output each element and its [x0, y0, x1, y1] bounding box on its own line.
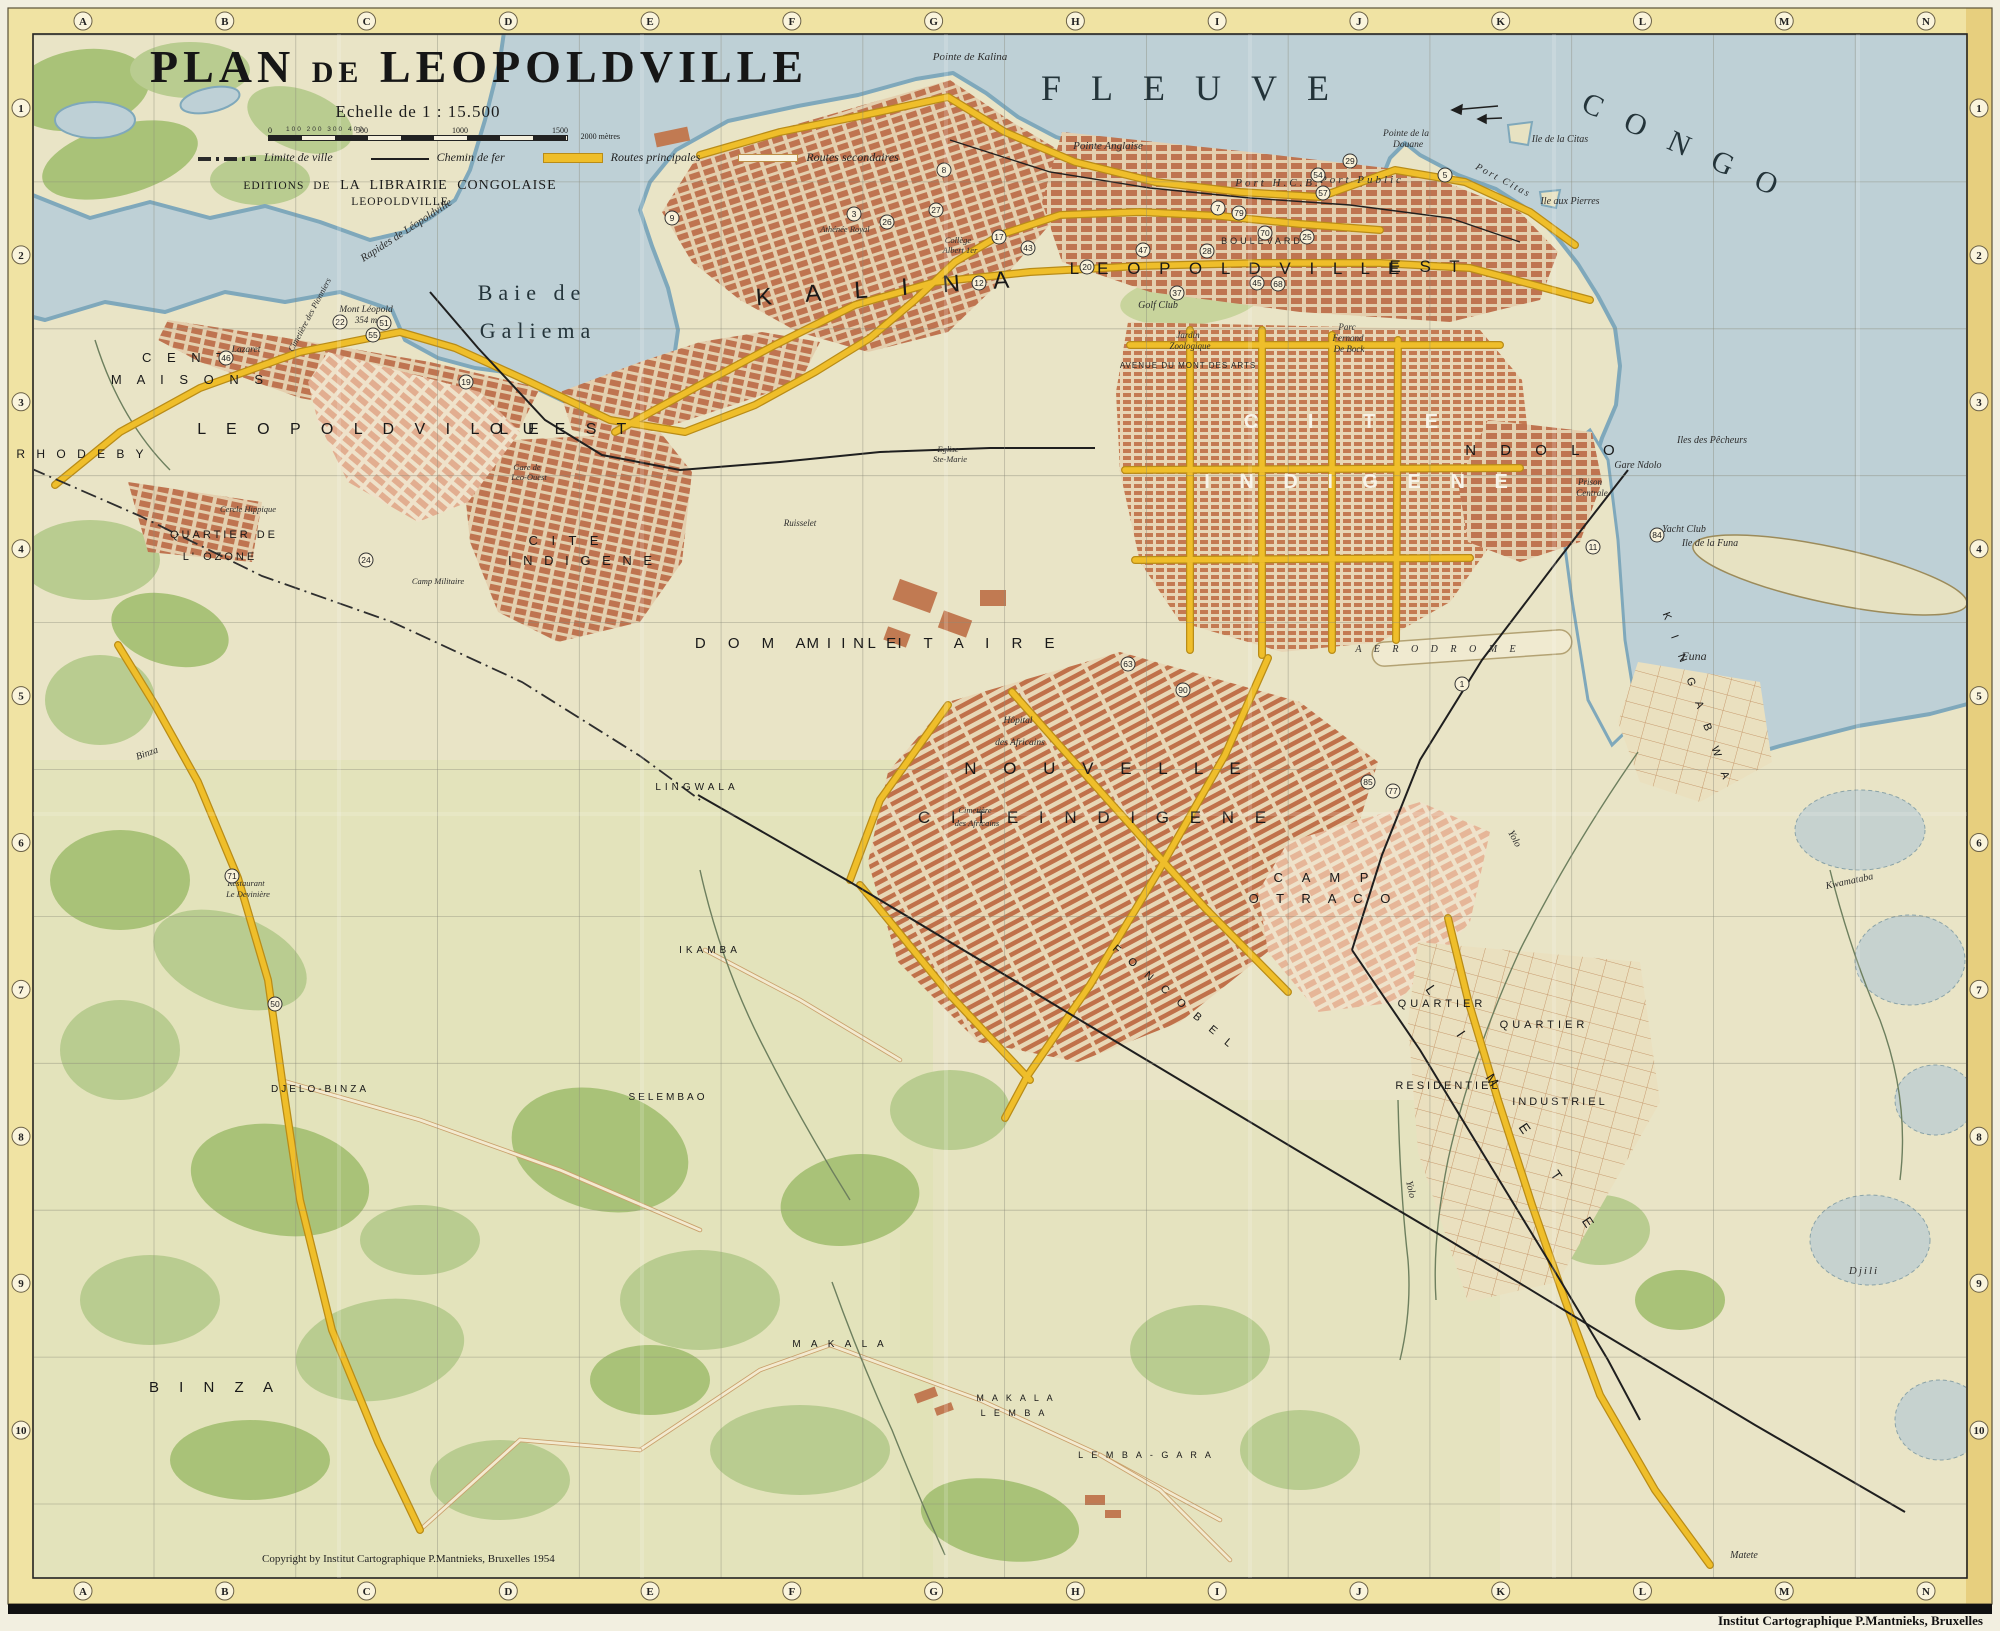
- grid-letter: M: [1779, 16, 1790, 28]
- poi-number: 20: [1082, 262, 1092, 272]
- map-label: Leo-Ouest: [510, 472, 547, 482]
- poi-number: 90: [1178, 685, 1188, 695]
- poi-number: 12: [974, 278, 984, 288]
- grid-number: 9: [18, 1278, 24, 1290]
- bottom-black-bar: [8, 1604, 1992, 1614]
- poi-number: 24: [361, 555, 371, 565]
- map-label: Douane: [1392, 140, 1423, 150]
- map-label: Fernand: [1332, 333, 1364, 343]
- map-label: Hôpital: [1002, 716, 1032, 726]
- grid-letter: G: [929, 1586, 938, 1598]
- grid-letter: J: [1356, 16, 1362, 28]
- poi-number: 68: [1273, 279, 1283, 289]
- island-citas: [1508, 122, 1532, 145]
- map-label: L E O P O L D V I L L E: [1070, 259, 1407, 278]
- grid-letter: N: [1922, 16, 1930, 28]
- map-label: IKAMBA: [679, 945, 741, 956]
- map-label: DJELO-BINZA: [271, 1084, 369, 1095]
- map-label: M A I S O N S: [111, 372, 269, 387]
- grid-letter: K: [1496, 16, 1505, 28]
- grid-number: 2: [18, 250, 24, 262]
- poi-number: 43: [1023, 243, 1033, 253]
- map-page: FLEUVECONGOBaie deGaliemaPointe de Kalin…: [0, 0, 2000, 1631]
- grid-number: 4: [18, 544, 24, 556]
- railway-swatch: [371, 158, 429, 161]
- poi-number: 77: [1388, 786, 1398, 796]
- grid-number: 5: [1976, 691, 1982, 703]
- map-label: Galiema: [480, 318, 597, 343]
- scale-tick: 1000: [452, 126, 468, 135]
- title-part: DE: [312, 56, 364, 89]
- map-label: Gare Ndolo: [1614, 460, 1661, 471]
- map-label: Yacht Club: [1662, 524, 1706, 535]
- poi-number: 3: [852, 209, 857, 219]
- map-label: Djili: [1848, 1265, 1879, 1277]
- map-label: Ruisselet: [783, 518, 817, 528]
- map-label: QUARTIER: [1500, 1019, 1589, 1031]
- map-label: LINGWALA: [655, 782, 738, 793]
- scale-tick: 0: [268, 126, 272, 135]
- grid-number: 7: [1976, 984, 1982, 996]
- legend-label: Chemin de fer: [437, 150, 505, 165]
- poi-number: 29: [1345, 156, 1355, 166]
- leopoldville-map: FLEUVECONGOBaie deGaliemaPointe de Kalin…: [0, 0, 2000, 1631]
- map-label: Pointe de Kalina: [932, 51, 1008, 63]
- map-label: Collège: [945, 235, 972, 245]
- grid-letter: C: [363, 1586, 371, 1598]
- map-label: Iles des Pêcheurs: [1676, 435, 1747, 446]
- legend-label: Routes secondaires: [806, 150, 899, 165]
- grid-letter: B: [221, 1586, 229, 1598]
- grid-letter: E: [646, 1586, 653, 1598]
- legend-label: Limite de ville: [264, 150, 333, 165]
- grid-letter: E: [646, 16, 653, 28]
- map-label: des Africains: [995, 737, 1045, 748]
- map-label: Gare de: [513, 462, 541, 472]
- poi-number: 45: [1252, 278, 1262, 288]
- title-part: LEOPOLDVILLE: [380, 41, 808, 92]
- map-label: I N D I G E N E: [508, 553, 656, 568]
- map-label: E S T: [1389, 257, 1466, 276]
- grid-number: 4: [1976, 544, 1982, 556]
- poi-number: 63: [1123, 659, 1133, 669]
- map-label: Matete: [1729, 1550, 1758, 1561]
- main-road-swatch: [543, 153, 603, 163]
- scale-minor-ticks: 100 200 300 400: [286, 126, 365, 133]
- grid-number: 6: [1976, 838, 1982, 850]
- map-label: Ile de la Citas: [1531, 134, 1588, 145]
- map-label: C I T E: [1244, 411, 1460, 433]
- imprint: Institut Cartographique P.Mantnieks, Bru…: [1718, 1613, 1983, 1629]
- map-label: Ile aux Pierres: [1539, 196, 1599, 207]
- grid-number: 2: [1976, 250, 1982, 262]
- grid-number: 1: [1976, 103, 1982, 115]
- map-label: INDUSTRIEL: [1512, 1096, 1607, 1108]
- map-label: N O U V E L L E: [964, 759, 1252, 778]
- poi-number: 54: [1313, 170, 1323, 180]
- map-label: AVENUE DU MONT DES ARTS: [1120, 361, 1256, 370]
- map-label: L' OZONE: [183, 551, 257, 563]
- poi-number: 9: [670, 213, 675, 223]
- city-limit-swatch: [198, 157, 256, 162]
- map-label: A E R O D R O M E: [1354, 644, 1520, 655]
- grid-letter: D: [504, 1586, 512, 1598]
- poi-number: 5: [1443, 170, 1448, 180]
- map-label: C I T E: [529, 533, 604, 548]
- map-label: R H O D E B Y: [16, 447, 147, 461]
- grid-letter: L: [1639, 1586, 1646, 1598]
- legend-item-chemin: Chemin de fer: [371, 150, 505, 165]
- poi-number: 85: [1363, 777, 1373, 787]
- grid-number: 8: [1976, 1131, 1982, 1143]
- map-label: N D O L O: [1465, 442, 1624, 459]
- map-label: M A K A L A: [792, 1339, 887, 1350]
- map-label: Athénée Royal: [819, 224, 870, 234]
- map-label: O T R A C O: [1249, 891, 1398, 906]
- map-label: De Bock: [1333, 344, 1366, 354]
- poi-number: 27: [931, 205, 941, 215]
- publisher-city: LEOPOLDVILLE: [351, 196, 449, 208]
- grid-letter: A: [79, 1586, 87, 1598]
- poi-number: 11: [1589, 542, 1598, 552]
- scale-tick: 1500: [552, 126, 568, 135]
- poi-number: 79: [1234, 208, 1244, 218]
- scale-block: Echelle de 1 : 15.500 0 500 1000 1500 10…: [268, 102, 568, 142]
- publisher-line: EDITIONS DE LA LIBRAIRIE CONGOLAISE LEOP…: [200, 178, 600, 210]
- grid-letter: N: [1922, 1586, 1930, 1598]
- grid-letter: G: [929, 16, 938, 28]
- map-label: 354 m: [354, 315, 378, 325]
- map-label: Centrale: [1576, 488, 1608, 498]
- grid-number: 6: [18, 838, 24, 850]
- map-label: O U E S T: [490, 421, 635, 438]
- map-label: Golf Club: [1138, 300, 1178, 311]
- map-label: Lazaret: [231, 345, 261, 355]
- map-label: Ile de la Funa: [1681, 538, 1738, 549]
- grid-number: 5: [18, 691, 24, 703]
- grid-number: 10: [1974, 1425, 1986, 1437]
- publisher-prefix: EDITIONS DE: [243, 180, 330, 192]
- map-label: Ste-Marie: [933, 454, 967, 464]
- map-title: PLAN DE LEOPOLDVILLE: [150, 40, 808, 93]
- grid-letter: I: [1215, 16, 1219, 28]
- map-legend: Limite de ville Chemin de fer Routes pri…: [198, 150, 899, 165]
- map-label: Le Devinière: [225, 889, 270, 899]
- legend-item-limite: Limite de ville: [198, 150, 333, 165]
- grid-letter: J: [1356, 1586, 1362, 1598]
- scale-bar: 0 500 1000 1500 100 200 300 400 2000 mèt…: [268, 126, 568, 142]
- map-label: FLEUVE: [1041, 68, 1359, 108]
- map-label: M A K A L A: [976, 1393, 1055, 1403]
- poi-number: 55: [368, 330, 378, 340]
- legend-label: Routes principales: [611, 150, 701, 165]
- poi-number: 47: [1138, 245, 1148, 255]
- map-label: Copyright by Institut Cartographique P.M…: [262, 1553, 555, 1565]
- legend-item-routes-secondaires: Routes secondaires: [738, 150, 899, 165]
- map-label: Pointe de la: [1382, 129, 1429, 139]
- poi-number: 57: [1318, 188, 1328, 198]
- grid-number: 3: [18, 397, 24, 409]
- grid-letter: A: [79, 16, 87, 28]
- poi-number: 84: [1652, 530, 1662, 540]
- map-label: QUARTIER DE: [170, 529, 278, 541]
- poi-number: 7: [1216, 203, 1221, 213]
- map-label: Jardin: [1176, 330, 1200, 340]
- map-label: Parc: [1337, 322, 1355, 332]
- grid-letter: M: [1779, 1586, 1790, 1598]
- publisher-name: LA LIBRAIRIE CONGOLAISE: [340, 178, 557, 193]
- secondary-road-swatch: [738, 154, 798, 162]
- map-label: Prison: [1577, 477, 1603, 487]
- map-label: des Africains: [955, 818, 1000, 828]
- title-part: PLAN: [150, 41, 295, 92]
- map-label: Pointe Anglaise: [1072, 140, 1143, 152]
- grid-letter: K: [1496, 1586, 1505, 1598]
- map-label: C E N T: [142, 350, 230, 365]
- poi-number: 19: [461, 377, 471, 387]
- scale-rule: [268, 135, 568, 141]
- poi-number: 71: [227, 871, 237, 881]
- poi-number: 51: [379, 318, 389, 328]
- poi-number: 25: [1302, 232, 1312, 242]
- grid-number: 8: [18, 1131, 24, 1143]
- grid-letter: F: [788, 16, 795, 28]
- poi-number: 46: [221, 353, 231, 363]
- map-label: Mont Léopold: [338, 305, 393, 315]
- map-label: L E M B A: [981, 1408, 1048, 1418]
- map-label: Port Public: [1319, 174, 1404, 186]
- map-label: Baie de: [478, 280, 587, 305]
- map-label: L E M B A - G A R A: [1078, 1450, 1214, 1460]
- grid-letter: C: [363, 16, 371, 28]
- grid-letter: D: [504, 16, 512, 28]
- grid-letter: I: [1215, 1586, 1219, 1598]
- grid-letter: H: [1071, 16, 1080, 28]
- grid-number: 9: [1976, 1278, 1982, 1290]
- grid-letter: L: [1639, 16, 1646, 28]
- map-label: Zoologique: [1169, 341, 1210, 351]
- legend-item-routes-principales: Routes principales: [543, 150, 701, 165]
- poi-number: 37: [1172, 288, 1182, 298]
- grid-letter: H: [1071, 1586, 1080, 1598]
- poi-number: 26: [882, 217, 892, 227]
- map-label: B I N Z A: [149, 1379, 281, 1396]
- poi-number: 1: [1460, 679, 1465, 689]
- map-label: Port H.C.B.: [1234, 177, 1321, 189]
- grid-letter: F: [788, 1586, 795, 1598]
- map-label: Funa: [1680, 649, 1706, 663]
- poi-number: 70: [1260, 228, 1270, 238]
- scale-title: Echelle de 1 : 15.500: [268, 102, 568, 122]
- map-label: Camp Militaire: [412, 576, 465, 586]
- grid-number: 3: [1976, 397, 1982, 409]
- grid-number: 1: [18, 103, 24, 115]
- grid-letter: B: [221, 16, 229, 28]
- grid-number: 7: [18, 984, 24, 996]
- map-label: M I L I T A I R E: [807, 635, 1064, 652]
- map-label: Cercle Hippique: [220, 504, 276, 514]
- map-label: C A M P: [1274, 870, 1377, 885]
- grid-number: 10: [16, 1425, 28, 1437]
- poi-number: 50: [270, 999, 280, 1009]
- poi-number: 28: [1202, 246, 1212, 256]
- poi-number: 17: [994, 232, 1004, 242]
- scale-end-label: 2000 mètres: [581, 132, 620, 141]
